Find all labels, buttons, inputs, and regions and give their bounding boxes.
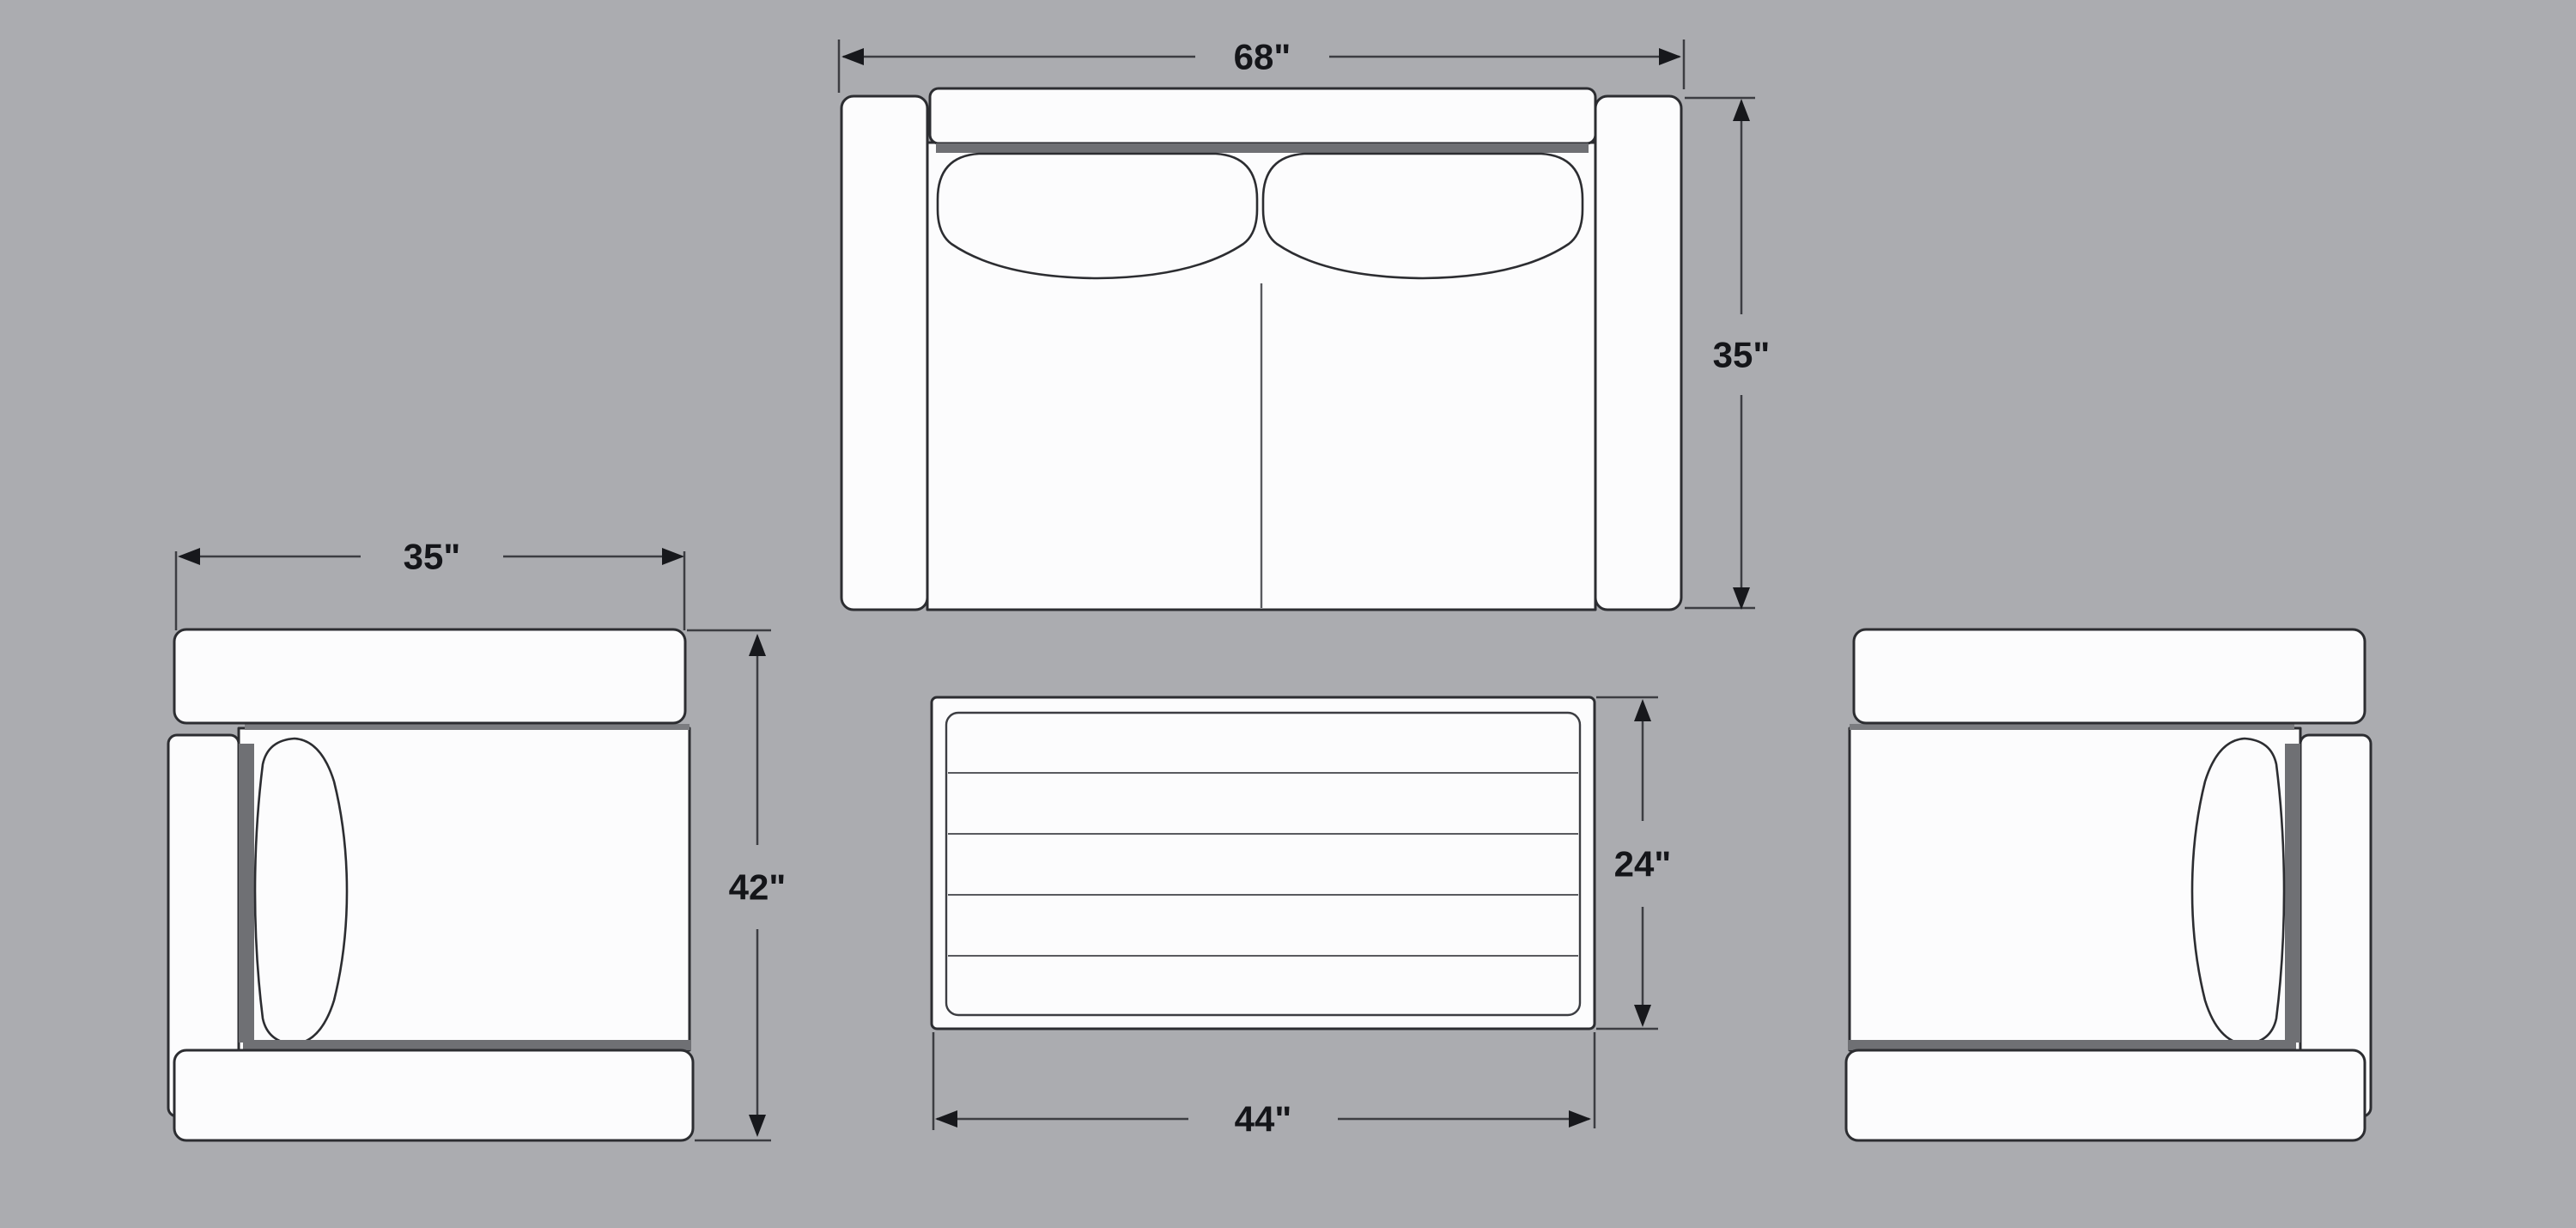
dim-arrow-down-icon: [1733, 587, 1750, 610]
sofa-width-label: 68": [1234, 37, 1291, 77]
seam-shadow: [936, 143, 1589, 153]
dim-arrow-left-icon: [841, 48, 864, 65]
chair-armrest-bottom: [1846, 1050, 2365, 1140]
dim-arrow-right-icon: [1569, 1110, 1591, 1128]
chair-armrest-bottom: [174, 1050, 693, 1140]
table-surface: [946, 713, 1580, 1015]
seam-shadow: [245, 724, 690, 730]
sofa-backrest: [930, 88, 1595, 143]
chair-armrest-top: [1854, 629, 2365, 723]
sofa-top-view: [841, 88, 1681, 610]
chair-width-label: 35": [404, 537, 461, 577]
table-width-label: 44": [1235, 1099, 1292, 1140]
dim-arrow-up-icon: [1733, 99, 1750, 121]
sofa-depth-label: 35": [1713, 335, 1771, 375]
seam-shadow: [239, 744, 254, 1043]
dimension-chair-depth: 42": [687, 630, 786, 1140]
dim-arrow-right-icon: [1659, 48, 1681, 65]
diagram-svg: 68" 35" 35" 42" 24": [0, 0, 2576, 1228]
chair-depth-label: 42": [729, 867, 787, 908]
dimension-table-depth: 24": [1596, 697, 1671, 1029]
sofa-armrest-right: [1595, 96, 1681, 610]
seam-shadow: [1848, 1040, 2296, 1050]
seam-shadow: [2285, 744, 2300, 1043]
table-depth-label: 24": [1614, 844, 1672, 885]
dim-arrow-up-icon: [1634, 699, 1651, 721]
chair-back-cushion: [255, 739, 347, 1044]
sofa-cushion-right: [1263, 154, 1583, 278]
chair-armrest-top: [174, 629, 685, 723]
armchair-right-top-view: [1846, 629, 2371, 1140]
coffee-table-top-view: [932, 697, 1595, 1029]
chair-back-cushion: [2192, 739, 2284, 1044]
armchair-left-top-view: [168, 629, 693, 1140]
furniture-dimension-diagram: 68" 35" 35" 42" 24": [0, 0, 2576, 1228]
dim-arrow-left-icon: [935, 1110, 957, 1128]
sofa-cushion-left: [938, 154, 1257, 278]
seam-shadow: [243, 1040, 691, 1050]
dimension-sofa-width: 68": [839, 37, 1684, 94]
dim-arrow-down-icon: [1634, 1005, 1651, 1027]
dim-arrow-left-icon: [178, 548, 200, 565]
dimension-sofa-depth: 35": [1685, 98, 1770, 610]
sofa-armrest-left: [841, 96, 927, 610]
dim-arrow-up-icon: [749, 634, 766, 656]
seam-shadow: [1850, 724, 2294, 730]
dimension-chair-width: 35": [176, 537, 684, 631]
dim-arrow-down-icon: [749, 1115, 766, 1137]
dimension-table-width: 44": [933, 1032, 1595, 1140]
dim-arrow-right-icon: [662, 548, 684, 565]
